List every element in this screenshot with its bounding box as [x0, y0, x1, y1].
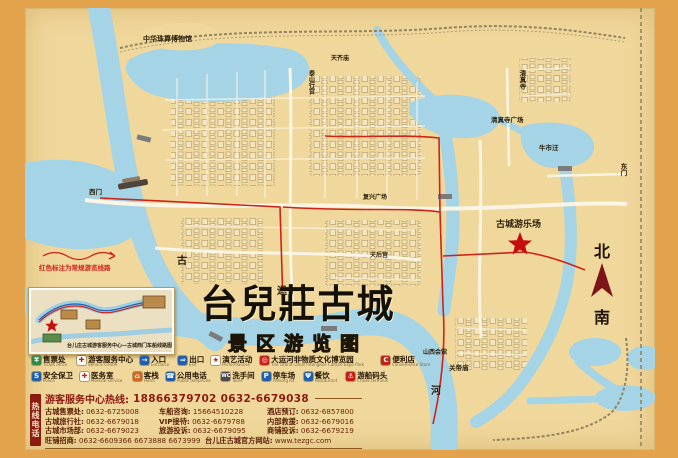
legend-sublabel: Parking lot: [273, 380, 295, 384]
amusement-park-star: [508, 232, 532, 255]
notice-arrow: [43, 252, 115, 260]
legend-sublabel: Performances: [222, 364, 250, 368]
bottom-band: [530, 397, 655, 401]
legend-item: ◎ 大运河非物质文化博览园The Grand Canal Intangible …: [260, 356, 374, 369]
map-label: 西门: [89, 187, 103, 196]
public-telephone-icon: ☎: [166, 372, 175, 381]
police-icon: S: [32, 372, 41, 381]
river-name-char: 河: [431, 385, 441, 397]
restaurant-icon: Ψ: [304, 372, 313, 381]
phone-entry: 古城市场部: 0632-6679023: [45, 426, 159, 436]
map-label: 复兴广场: [362, 193, 387, 201]
medical-icon: ✚: [80, 372, 89, 381]
legend-item: ✚ 游客服务中心Service Center: [77, 356, 133, 369]
website-label: 台儿庄古城官方网站:: [205, 436, 273, 445]
map-label: 中华珠算博物馆: [143, 34, 192, 43]
map-label: 山西会馆: [423, 348, 447, 356]
phone-entry: 古城旅行社: 0632-6679018: [45, 417, 159, 427]
legend-sublabel: Restaurant: [315, 380, 337, 384]
inset-caption: 台儿庄古城游客服务中心—古城西门车船线路图: [67, 342, 172, 349]
hotline-grid: 古城售票处: 0632-6725008 车船咨询: 15664510228 酒店…: [45, 407, 362, 436]
map-label: 泰山行宫: [308, 69, 316, 95]
service-center-icon: ✚: [77, 356, 86, 365]
legend-item: WC 洗手间Toilet: [221, 372, 255, 385]
inset-building: [86, 320, 100, 329]
map-label: 清真寺: [518, 69, 526, 91]
map-label: 古城游乐场: [496, 218, 541, 230]
toilet-icon: WC: [221, 372, 230, 381]
route-notice-text: 红色标注为常规游览线路: [39, 263, 111, 272]
inset-park: [43, 334, 61, 342]
website-url: www.tezgc.com: [275, 436, 331, 445]
ticket-office-icon: ¥: [32, 356, 41, 365]
inset-building: [143, 296, 165, 308]
hotel-icon: ⌂: [133, 372, 142, 381]
leasing-label: 旺铺招商:: [45, 436, 77, 445]
legend-item: ⌂ 客栈Hotel: [133, 372, 159, 385]
entrance-icon: →: [140, 356, 149, 365]
legend-row-2: S 安全保卫Police ✚ 医务室Medical service ⌂ 客栈Ho…: [32, 372, 364, 385]
legend-item: ★ 演艺活动Performances: [211, 356, 253, 369]
hotline-side-tab: 热线电话: [30, 394, 41, 446]
legend-sublabel: Toilet: [232, 380, 252, 384]
legend-item: ¥ 售票处Ticket office: [32, 356, 70, 369]
exit-icon: ⇒: [178, 356, 187, 365]
parking-icon: P: [262, 372, 271, 381]
cruise-terminal-icon: ⚓: [346, 372, 355, 381]
legend-item: → 入口Entrance: [140, 356, 171, 369]
leasing-numbers: 0632-6609366 6673888 6673999: [79, 436, 201, 445]
legend-item: C 便利店Convenience Store: [381, 356, 434, 369]
legend-item: Ψ 餐饮Restaurant: [304, 372, 340, 385]
legend-item: S 安全保卫Police: [32, 372, 73, 385]
map-label: 关帝庙: [449, 363, 469, 372]
hotline-body: 游客服务中心热线: 18866379702 0632-6679038 古城售票处…: [45, 391, 362, 449]
hotline-block: 热线电话 游客服务中心热线: 18866379702 0632-6679038 …: [30, 391, 362, 449]
performances-icon: ★: [211, 356, 220, 365]
map-label: 清真寺广场: [491, 115, 524, 124]
compass: 北 南: [585, 238, 619, 328]
hotline-last-line: 旺铺招商: 0632-6609366 6673888 6673999 台儿庄古城…: [45, 436, 362, 446]
inset-building: [61, 310, 77, 319]
phone-entry: 车船咨询: 15664510228: [159, 407, 267, 417]
legend-item: P 停车场Parking lot: [262, 372, 297, 385]
river-name-char: 运: [277, 285, 287, 297]
hotline-heading: 游客服务中心热线: 18866379702 0632-6679038: [45, 391, 362, 406]
legend-sublabel: Public telephone: [177, 380, 211, 384]
legend-sublabel: Convenience Store: [392, 364, 430, 368]
expo-park-icon: ◎: [260, 356, 269, 365]
hotline-heading-numbers: 18866379702 0632-6679038: [133, 393, 309, 405]
inset-route-map: 台儿庄古城游客服务中心—古城西门车船线路图: [28, 287, 175, 355]
legend-sublabel: Medical service: [91, 380, 122, 384]
legend-item: ☎ 公用电话Public telephone: [166, 372, 214, 385]
hotline-heading-label: 游客服务中心热线:: [45, 391, 129, 406]
legend-item: ✚ 医务室Medical service: [80, 372, 126, 385]
legend-item: ⚓ 游船码头Cruise terminal: [346, 372, 391, 385]
compass-north-label: 北: [585, 238, 619, 262]
legend-sublabel: Ticket office: [43, 364, 67, 368]
map-legend: ¥ 售票处Ticket office ✚ 游客服务中心Service Cente…: [32, 356, 364, 388]
map-label: 牛市汪: [539, 143, 559, 152]
legend-sublabel: Hotel: [144, 380, 158, 384]
legend-sublabel: Cruise terminal: [357, 380, 388, 384]
river-name-char: 古: [177, 254, 187, 267]
legend-sublabel: Exit: [189, 364, 203, 368]
north-lake: [126, 43, 309, 102]
map-label: 东门: [619, 162, 627, 178]
legend-item: ⇒ 出口Exit: [178, 356, 204, 369]
phone-entry: 旅游投诉: 0632-6679095: [159, 426, 267, 436]
legend-sublabel: The Grand Canal Intangible Culture Expo …: [271, 364, 364, 368]
compass-arrow-icon: [587, 262, 617, 300]
legend-sublabel: Service Center: [88, 364, 129, 368]
phone-entry: VIP接待: 0632-6679788: [159, 417, 267, 427]
convenience-store-icon: C: [381, 356, 390, 365]
phone-entry: 古城售票处: 0632-6725008: [45, 407, 159, 417]
phone-entry: 商铺投诉: 0632-6679219: [267, 426, 362, 436]
legend-sublabel: Entrance: [151, 364, 169, 368]
ne-pond: [409, 95, 500, 138]
map-label: 天齐庙: [331, 54, 349, 62]
map-label: 天后宫: [370, 251, 388, 259]
east-channel: [444, 133, 453, 310]
phone-entry: 酒店预订: 0632-6857800: [267, 407, 362, 417]
compass-south-label: 南: [585, 304, 619, 328]
legend-sublabel: Police: [43, 380, 70, 384]
tourist-map-page: 中华珠算博物馆 天齐庙 泰山行宫 清真寺 清真寺广场 牛市汪 东门 古城游乐场 …: [0, 0, 678, 458]
phone-entry: 内部救援: 0632-6679016: [267, 417, 362, 427]
legend-row-1: ¥ 售票处Ticket office ✚ 游客服务中心Service Cente…: [32, 356, 364, 369]
